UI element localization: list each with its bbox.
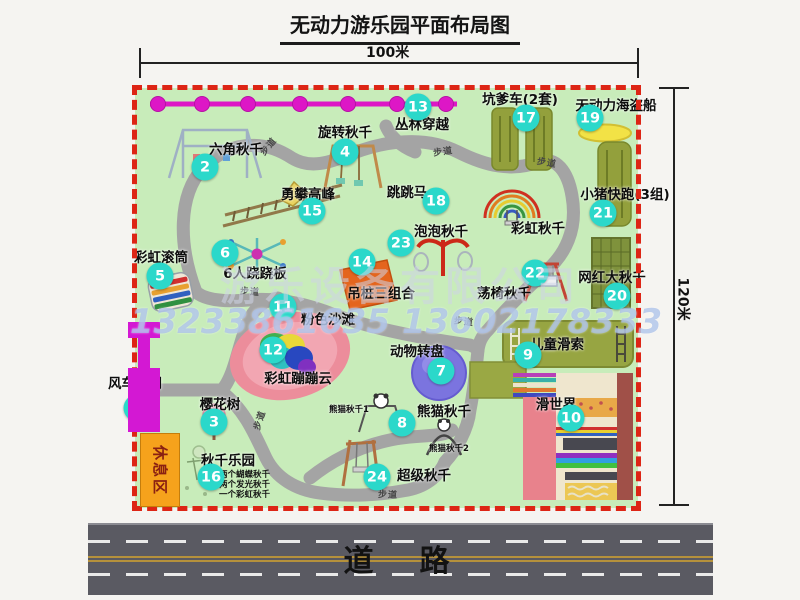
item-marker-17: 17 — [513, 105, 540, 132]
item-marker-2: 2 — [192, 154, 219, 181]
item-marker-24: 24 — [364, 464, 391, 491]
item-marker-22: 22 — [522, 260, 549, 287]
item-marker-19: 19 — [577, 105, 604, 132]
item-marker-12: 12 — [260, 337, 287, 364]
item-label-18: 跳跳马 — [387, 181, 428, 201]
item-marker-13: 13 — [405, 94, 432, 121]
item-sublabels-16: 两个蝴蝶秋千两个发光秋千一个彩虹秋千 — [219, 470, 270, 500]
bubble-swing-icon — [414, 240, 472, 276]
slide-world-icon — [470, 362, 633, 500]
item-label-12: 彩虹蹦蹦云 — [264, 367, 332, 387]
item-label-7: 动物转盘 — [390, 340, 444, 360]
top-dimension-label: 100米 — [366, 42, 409, 62]
item-marker-9: 9 — [515, 342, 542, 369]
walkway-label-6: 步道 — [453, 313, 474, 328]
page-title: 无动力游乐园平面布局图 — [280, 9, 520, 45]
item-label-2: 六角秋千 — [209, 138, 263, 158]
item-marker-16: 16 — [198, 464, 225, 491]
right-dimension-tick-bottom — [659, 504, 689, 506]
item-label-22: 荡椅秋千 — [477, 282, 531, 302]
item-marker-23: 23 — [388, 230, 415, 257]
park-area: 步道步道步道步道步道步道步道风车大门1六角秋千2樱花树3旋转秋千4彩虹滚筒56人… — [135, 88, 638, 508]
item-marker-14: 14 — [349, 249, 376, 276]
item-marker-20: 20 — [604, 283, 631, 310]
item-marker-5: 5 — [147, 263, 174, 290]
panda-swing-2-label: 熊猫秋千2 — [429, 442, 469, 454]
item-marker-21: 21 — [590, 200, 617, 227]
rainbow-swing-label: 彩虹秋千 — [511, 217, 565, 237]
item-marker-8: 8 — [389, 410, 416, 437]
item-marker-4: 4 — [332, 139, 359, 166]
item-marker-11: 11 — [270, 294, 297, 321]
walkway-label-4: 步道 — [240, 284, 261, 298]
rest-area-label: 休息区 — [150, 444, 171, 495]
panda-swing-1-label: 熊猫秋千1 — [329, 403, 369, 415]
layout-plan-canvas: 无动力游乐园平面布局图 100米 120米 — [0, 0, 800, 600]
item-label-11: 粉色沙滩 — [301, 308, 355, 328]
right-dimension-tick-top — [659, 87, 689, 89]
item-marker-6: 6 — [212, 240, 239, 267]
top-dimension-tick-left — [139, 48, 141, 78]
road-label: 道 路 — [344, 536, 458, 580]
item-label-6: 6人跷跷板 — [223, 262, 286, 282]
road-band: 道 路 — [88, 523, 713, 595]
item-marker-3: 3 — [201, 409, 228, 436]
item-marker-18: 18 — [423, 188, 450, 215]
item-label-24: 超级秋千 — [397, 464, 451, 484]
item-marker-7: 7 — [428, 358, 455, 385]
top-dimension-line — [140, 62, 638, 64]
rest-area-box: 休息区 — [140, 433, 180, 507]
item-label-14: 吊桩三组合 — [347, 282, 415, 302]
item-label-8: 熊猫秋千 — [417, 400, 471, 420]
walkway-label-2: 步道 — [432, 143, 454, 159]
item-label-23: 泡泡秋千 — [414, 220, 468, 240]
item-label-21: 小猪快跑(3组) — [580, 183, 669, 203]
item-marker-15: 15 — [299, 198, 326, 225]
right-dimension-label: 120米 — [674, 277, 694, 320]
top-dimension-tick-right — [637, 48, 639, 78]
item-marker-10: 10 — [558, 405, 585, 432]
